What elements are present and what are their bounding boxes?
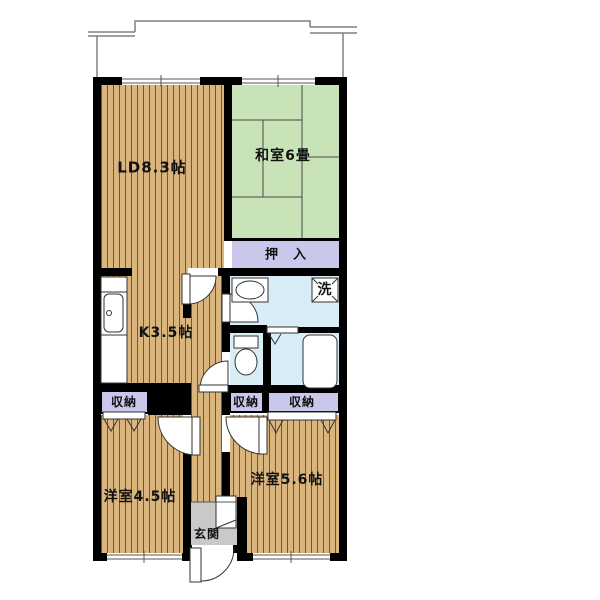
bath-sliding-door bbox=[267, 327, 298, 333]
room-label-western-room-small: 洋室4.5帖 bbox=[104, 490, 177, 504]
room-label-oshiire: 押 入 bbox=[265, 249, 307, 262]
storage-left-bifold bbox=[103, 412, 145, 419]
room-label-storage-right: 収納 bbox=[289, 396, 315, 408]
living-dining-floor bbox=[101, 85, 224, 268]
room-label-entrance: 玄関 bbox=[194, 528, 220, 540]
washroom-door-leaf bbox=[222, 294, 230, 322]
room-label-storage-left: 収納 bbox=[111, 396, 137, 408]
storage-right-bifold bbox=[268, 412, 336, 420]
floorplan-page: LD8.3帖 和室6畳 押 入 洗 K3.5帖 収納 収納 収納 洋室4.5帖 … bbox=[0, 0, 600, 600]
shoe-cabinet bbox=[216, 496, 236, 528]
room-label-storage-middle: 収納 bbox=[233, 396, 259, 408]
washbasin bbox=[232, 278, 268, 302]
room45-door-leaf bbox=[192, 417, 200, 455]
ld-hall-door-leaf bbox=[182, 274, 190, 304]
room56-door-leaf bbox=[259, 417, 267, 454]
kitchen-sink-counter bbox=[101, 277, 127, 383]
entrance-door-leaf bbox=[190, 548, 201, 582]
floorplan-drawing bbox=[0, 0, 600, 600]
room-label-washing-machine: 洗 bbox=[318, 283, 333, 297]
bathtub bbox=[303, 335, 337, 388]
balcony-outline bbox=[88, 21, 357, 77]
ld-kitchen-opening-floor bbox=[132, 268, 188, 276]
room-label-japanese-room: 和室6畳 bbox=[255, 149, 311, 163]
room-label-western-room-large: 洋室5.6帖 bbox=[251, 473, 324, 487]
toilet-door-leaf bbox=[199, 385, 228, 392]
room-label-living-dining: LD8.3帖 bbox=[117, 161, 187, 176]
room-label-kitchen: K3.5帖 bbox=[139, 326, 194, 340]
toilet bbox=[234, 336, 258, 375]
